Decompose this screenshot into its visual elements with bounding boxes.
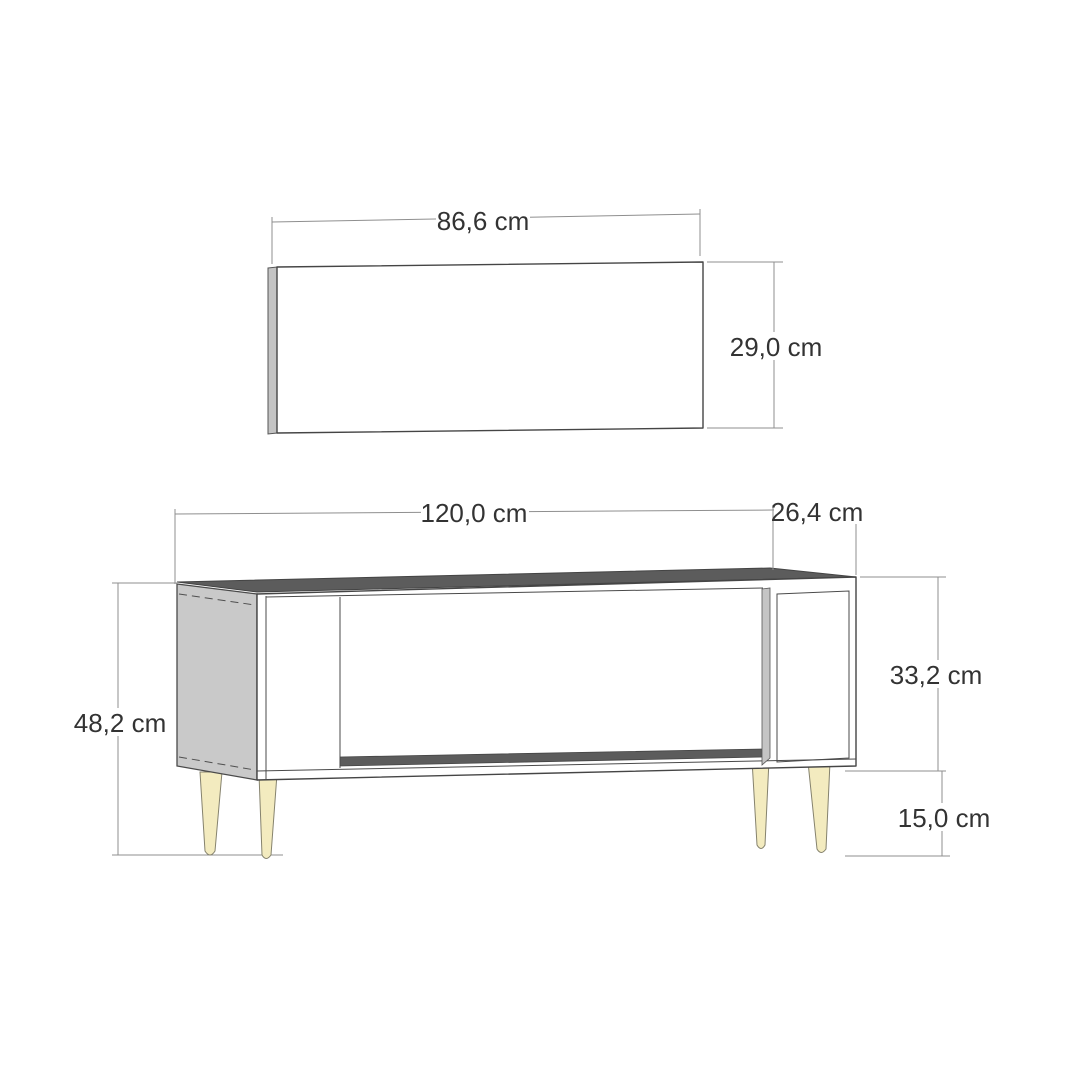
- front-right-leg: [808, 762, 830, 853]
- tv-stand-carcass-height-label: 33,2 cm: [890, 660, 983, 690]
- tv-stand-total-height-dimension: 48,2 cm: [74, 583, 177, 855]
- back-left-leg: [259, 774, 277, 859]
- wall-panel-width-label: 86,6 cm: [437, 206, 530, 236]
- wall-panel-height-dimension: 29,0 cm: [707, 262, 824, 428]
- back-right-leg: [752, 760, 769, 849]
- wall-panel-height-label: 29,0 cm: [730, 332, 823, 362]
- wall-panel-width-dimension: 86,6 cm: [272, 206, 700, 264]
- tv-stand-total-height-label: 48,2 cm: [74, 708, 167, 738]
- furniture-dimension-drawing: 86,6 cm 29,0 cm: [0, 0, 1080, 1080]
- left-side-panel: [177, 584, 257, 780]
- wall-panel-face: [277, 262, 703, 433]
- divider-edge-strip: [762, 588, 770, 765]
- tv-stand-leg-height-dimension: 15,0 cm: [845, 771, 990, 856]
- tv-stand-width-label: 120,0 cm: [421, 498, 528, 528]
- tv-stand-carcass-height-dimension: 33,2 cm: [845, 577, 982, 771]
- front-left-leg: [200, 772, 222, 855]
- wall-panel: [268, 262, 703, 434]
- tv-stand-carcass: [177, 568, 856, 780]
- tv-stand-leg-height-label: 15,0 cm: [898, 803, 991, 833]
- wall-panel-edge-strip: [268, 267, 277, 434]
- tv-stand-depth-label: 26,4 cm: [771, 497, 864, 527]
- tv-stand-depth-dimension: 26,4 cm: [771, 496, 864, 575]
- drawing-svg: 86,6 cm 29,0 cm: [0, 0, 1080, 1080]
